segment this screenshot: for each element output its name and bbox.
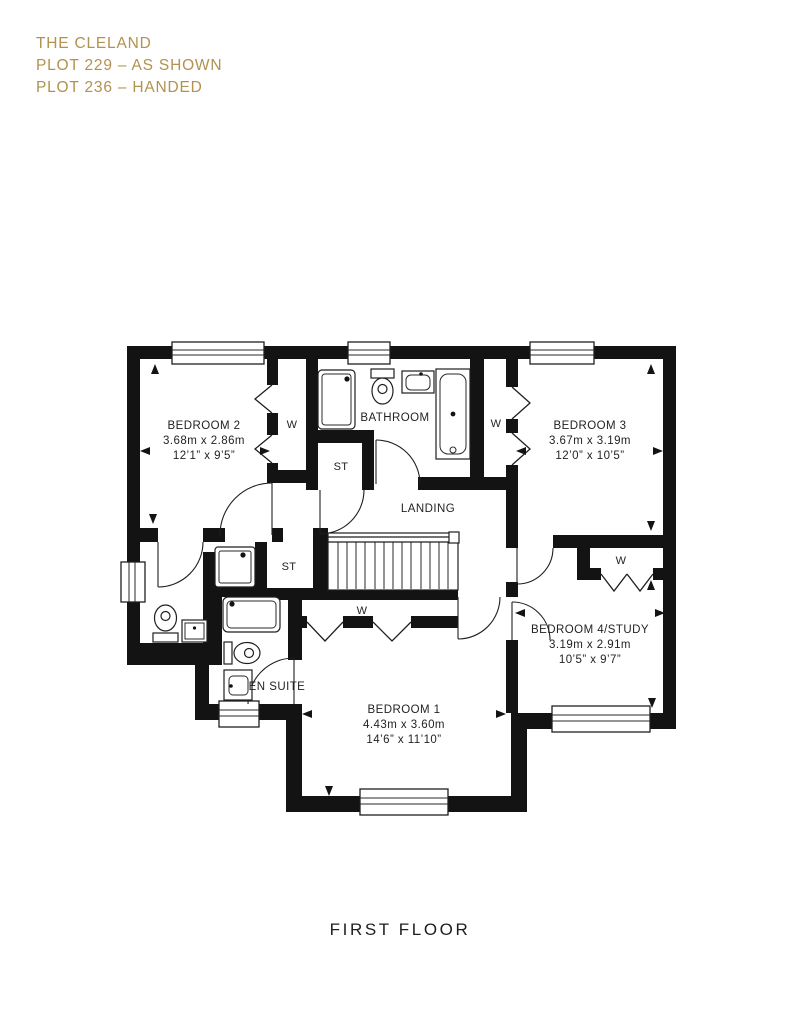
wall-segment	[577, 568, 601, 580]
stairs	[328, 532, 459, 590]
shower-icon-ensuite	[223, 597, 280, 632]
bedroom3-name: BEDROOM 3	[553, 420, 626, 432]
bedroom1-name: BEDROOM 1	[367, 704, 440, 716]
bedroom3-imperial: 12’0” x 10’5”	[555, 450, 624, 462]
wardrobe-label-bedroom1: W	[357, 605, 368, 617]
door-bedroom2	[220, 483, 272, 535]
wall-segment	[302, 616, 307, 628]
wall-segment	[306, 430, 374, 443]
measure-arrow	[653, 447, 663, 455]
measure-arrow	[647, 521, 655, 531]
bath-icon	[436, 369, 470, 459]
floorplan-page: THE CLELAND PLOT 229 – AS SHOWN PLOT 236…	[0, 0, 800, 1036]
wardrobe-label-bedroom4: W	[616, 555, 627, 567]
plan-title: THE CLELAND	[36, 35, 152, 52]
bedroom4-imperial: 10’5” x 9’7”	[559, 654, 621, 666]
floor-caption: FIRST FLOOR	[330, 920, 471, 939]
measure-arrow	[516, 447, 526, 455]
measure-arrow	[151, 364, 159, 374]
shower-icon-wc	[215, 547, 255, 587]
wall-segment	[411, 616, 458, 628]
ensuite-name: EN SUITE	[249, 681, 306, 693]
toilet-icon-ensuite	[224, 642, 260, 664]
wall-segment	[288, 590, 302, 660]
door-bathroom	[376, 440, 420, 484]
bedroom4-metric: 3.19m x 2.91m	[549, 639, 631, 651]
wall-segment	[506, 359, 518, 387]
window-bedroom3	[530, 342, 594, 364]
window-bedroom1	[360, 789, 448, 815]
wall-segment	[267, 359, 278, 385]
door-store1	[320, 490, 364, 534]
bifold-bedroom4-wardrobe	[601, 574, 627, 591]
wall-segment	[306, 359, 318, 490]
wall-segment	[663, 346, 676, 729]
wall-segment	[418, 477, 506, 490]
wall-segment	[470, 359, 484, 477]
window-bedroom4	[552, 706, 650, 732]
basin-icon-bathroom	[402, 371, 434, 393]
measure-arrow	[149, 514, 157, 524]
window-ensuite	[219, 701, 259, 727]
store-label-2: ST	[282, 561, 297, 573]
stair-newel	[449, 532, 459, 543]
measure-arrow	[325, 786, 333, 796]
bifold-bedroom2-wardrobe	[255, 385, 272, 413]
bifold-bedroom3-wardrobe	[512, 387, 530, 419]
vanity-icon-wc	[182, 620, 207, 642]
wall-segment	[343, 616, 373, 628]
wall-segment	[362, 443, 374, 490]
wall-segment	[286, 704, 302, 812]
wall-segment	[267, 413, 278, 435]
window-bedroom2	[172, 342, 264, 364]
measure-arrow	[302, 710, 312, 718]
wall-segment	[140, 528, 158, 542]
measure-arrow	[515, 609, 525, 617]
wall-segment	[255, 542, 267, 588]
bedroom1-metric: 4.43m x 3.60m	[363, 719, 445, 731]
bedroom3-metric: 3.67m x 3.19m	[549, 435, 631, 447]
measure-arrow	[260, 447, 270, 455]
wall-segment	[553, 535, 663, 548]
bifold-bedroom1-wardrobe	[373, 622, 411, 641]
bedroom1-imperial: 14’6” x 11’10”	[366, 734, 441, 746]
plot-handed-label: PLOT 236 – HANDED	[36, 79, 203, 96]
floorplan-canvas: THE CLELAND PLOT 229 – AS SHOWN PLOT 236…	[0, 0, 800, 1036]
measure-arrow	[647, 580, 655, 590]
bedroom4-name: BEDROOM 4/STUDY	[531, 624, 649, 636]
window-bathroom	[348, 342, 390, 364]
landing-name: LANDING	[401, 503, 455, 515]
door-bedroom3	[517, 548, 553, 584]
bedroom2-metric: 3.68m x 2.86m	[163, 435, 245, 447]
toilet-icon-bathroom	[371, 369, 394, 404]
measure-arrow	[647, 364, 655, 374]
bifold-bedroom1-wardrobe	[307, 622, 343, 641]
plot-as-shown-label: PLOT 229 – AS SHOWN	[36, 57, 222, 74]
bathroom-name: BATHROOM	[360, 412, 429, 424]
window-wc-side	[121, 562, 145, 602]
wall-segment	[272, 528, 283, 542]
door-wc	[158, 542, 203, 587]
door-bedroom1	[458, 597, 500, 639]
toilet-icon-wc	[153, 605, 178, 642]
plan-header: THE CLELAND PLOT 229 – AS SHOWN PLOT 236…	[36, 35, 222, 96]
wall-segment	[653, 568, 663, 580]
wall-segment	[203, 528, 225, 542]
measure-arrow	[140, 447, 150, 455]
wall-segment	[506, 419, 518, 433]
wall-segment	[506, 582, 518, 597]
wardrobe-label-bedroom3: W	[491, 418, 502, 430]
bedroom2-imperial: 12’1” x 9’5”	[173, 450, 235, 462]
bedroom2-name: BEDROOM 2	[167, 420, 240, 432]
wall-segment	[506, 465, 518, 548]
store-label-1: ST	[334, 461, 349, 473]
wardrobe-label-bedroom2: W	[287, 419, 298, 431]
wall-segment	[506, 640, 518, 713]
shower-icon-bathroom	[318, 370, 355, 429]
measure-arrow	[496, 710, 506, 718]
